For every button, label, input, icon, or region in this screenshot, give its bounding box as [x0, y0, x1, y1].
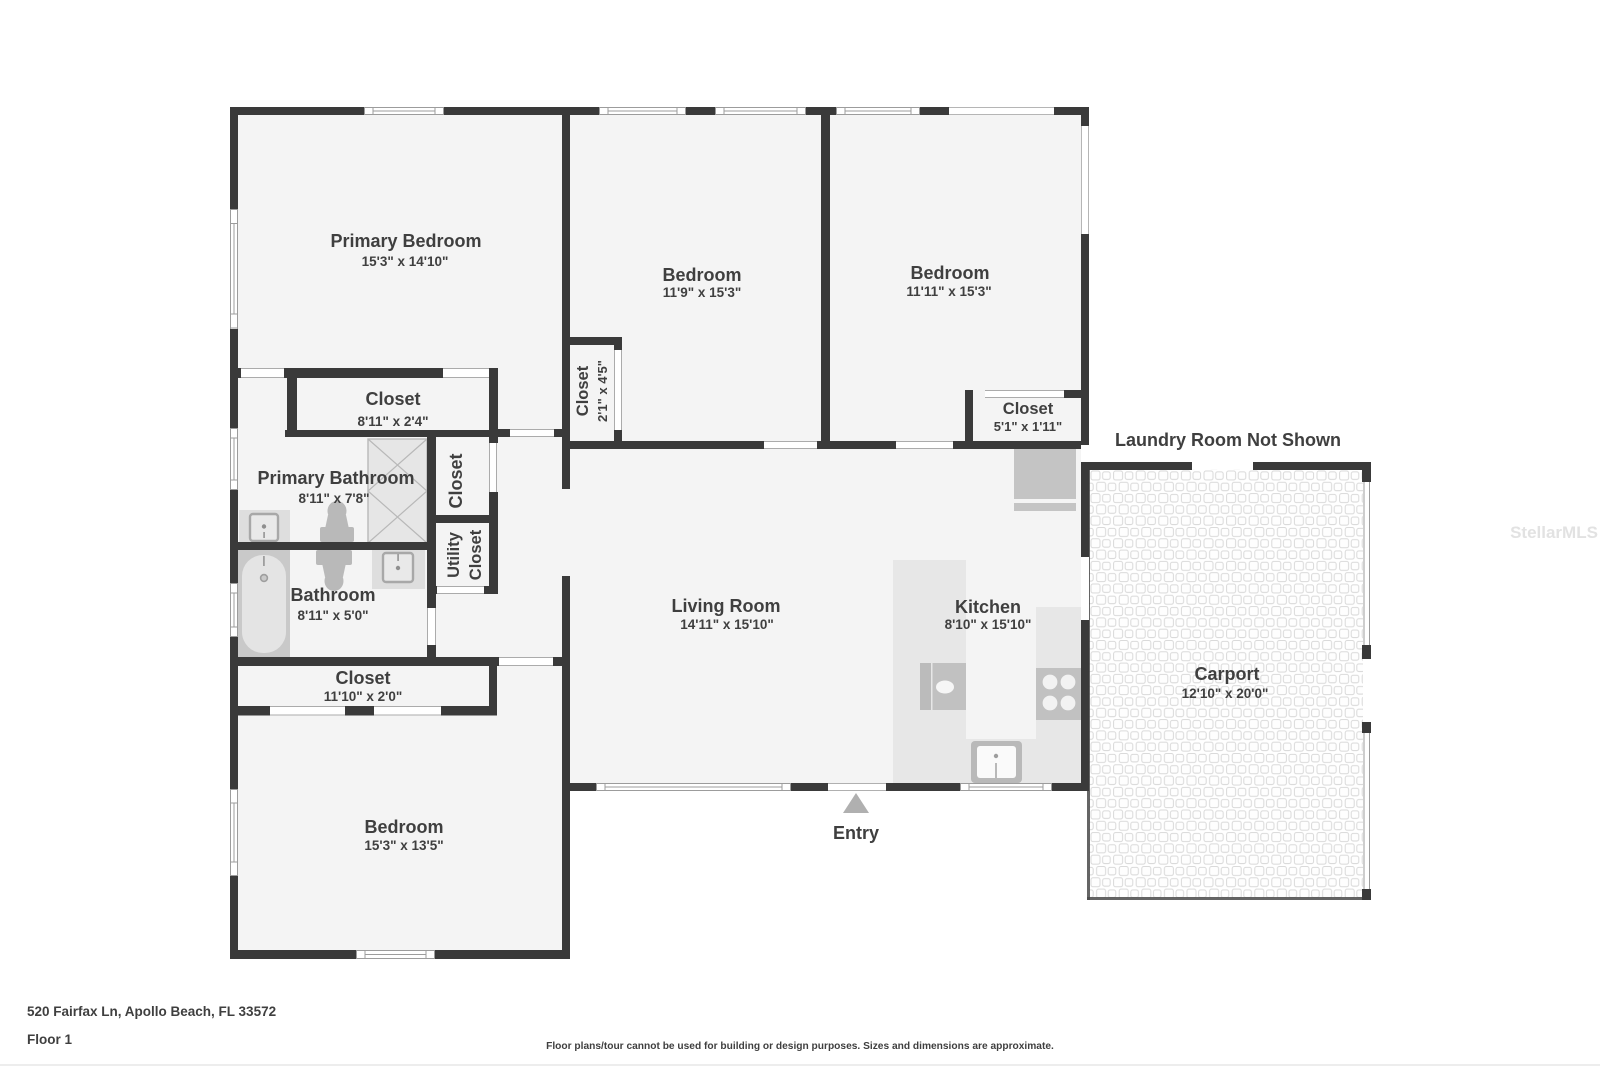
- svg-text:Bedroom: Bedroom: [364, 817, 443, 837]
- svg-text:14'11" x 15'10": 14'11" x 15'10": [680, 617, 774, 632]
- svg-text:Closet: Closet: [446, 453, 466, 508]
- svg-text:Closet: Closet: [467, 529, 485, 580]
- svg-text:StellarMLS: StellarMLS: [1510, 523, 1598, 542]
- svg-text:Closet: Closet: [365, 389, 420, 409]
- svg-text:Floor 1: Floor 1: [27, 1032, 72, 1047]
- svg-text:Kitchen: Kitchen: [955, 597, 1021, 617]
- svg-text:15'3" x 13'5": 15'3" x 13'5": [364, 838, 443, 853]
- svg-text:11'9" x 15'3": 11'9" x 15'3": [663, 285, 742, 300]
- svg-text:Bedroom: Bedroom: [662, 265, 741, 285]
- svg-text:5'1" x 1'11": 5'1" x 1'11": [994, 419, 1062, 434]
- svg-text:Living Room: Living Room: [672, 596, 781, 616]
- svg-text:Carport: Carport: [1194, 664, 1259, 684]
- svg-text:Bedroom: Bedroom: [910, 263, 989, 283]
- svg-text:12'10" x 20'0": 12'10" x 20'0": [1182, 686, 1269, 701]
- svg-text:8'11" x 5'0": 8'11" x 5'0": [297, 608, 368, 623]
- svg-text:11'10" x 2'0": 11'10" x 2'0": [324, 689, 403, 704]
- svg-text:Closet: Closet: [335, 668, 390, 688]
- svg-text:Bathroom: Bathroom: [291, 585, 376, 605]
- svg-text:Closet: Closet: [574, 365, 592, 416]
- svg-text:Floor plans/tour cannot be use: Floor plans/tour cannot be used for buil…: [546, 1041, 1054, 1052]
- svg-text:Utility: Utility: [445, 531, 463, 578]
- svg-text:2'1" x 4'5": 2'1" x 4'5": [595, 360, 610, 422]
- svg-text:15'3" x 14'10": 15'3" x 14'10": [362, 254, 449, 269]
- svg-text:8'11" x 2'4": 8'11" x 2'4": [357, 414, 428, 429]
- svg-text:Primary Bathroom: Primary Bathroom: [257, 468, 414, 488]
- svg-text:8'10" x 15'10": 8'10" x 15'10": [945, 617, 1032, 632]
- svg-text:Entry: Entry: [833, 823, 879, 843]
- svg-text:8'11" x 7'8": 8'11" x 7'8": [298, 491, 369, 506]
- svg-text:Laundry Room Not Shown: Laundry Room Not Shown: [1115, 430, 1341, 450]
- svg-text:11'11" x 15'3": 11'11" x 15'3": [906, 284, 991, 299]
- svg-text:520 Fairfax Ln, Apollo Beach,: 520 Fairfax Ln, Apollo Beach, FL 33572: [27, 1004, 276, 1019]
- svg-text:Closet: Closet: [1003, 400, 1054, 418]
- svg-text:Primary Bedroom: Primary Bedroom: [330, 231, 481, 251]
